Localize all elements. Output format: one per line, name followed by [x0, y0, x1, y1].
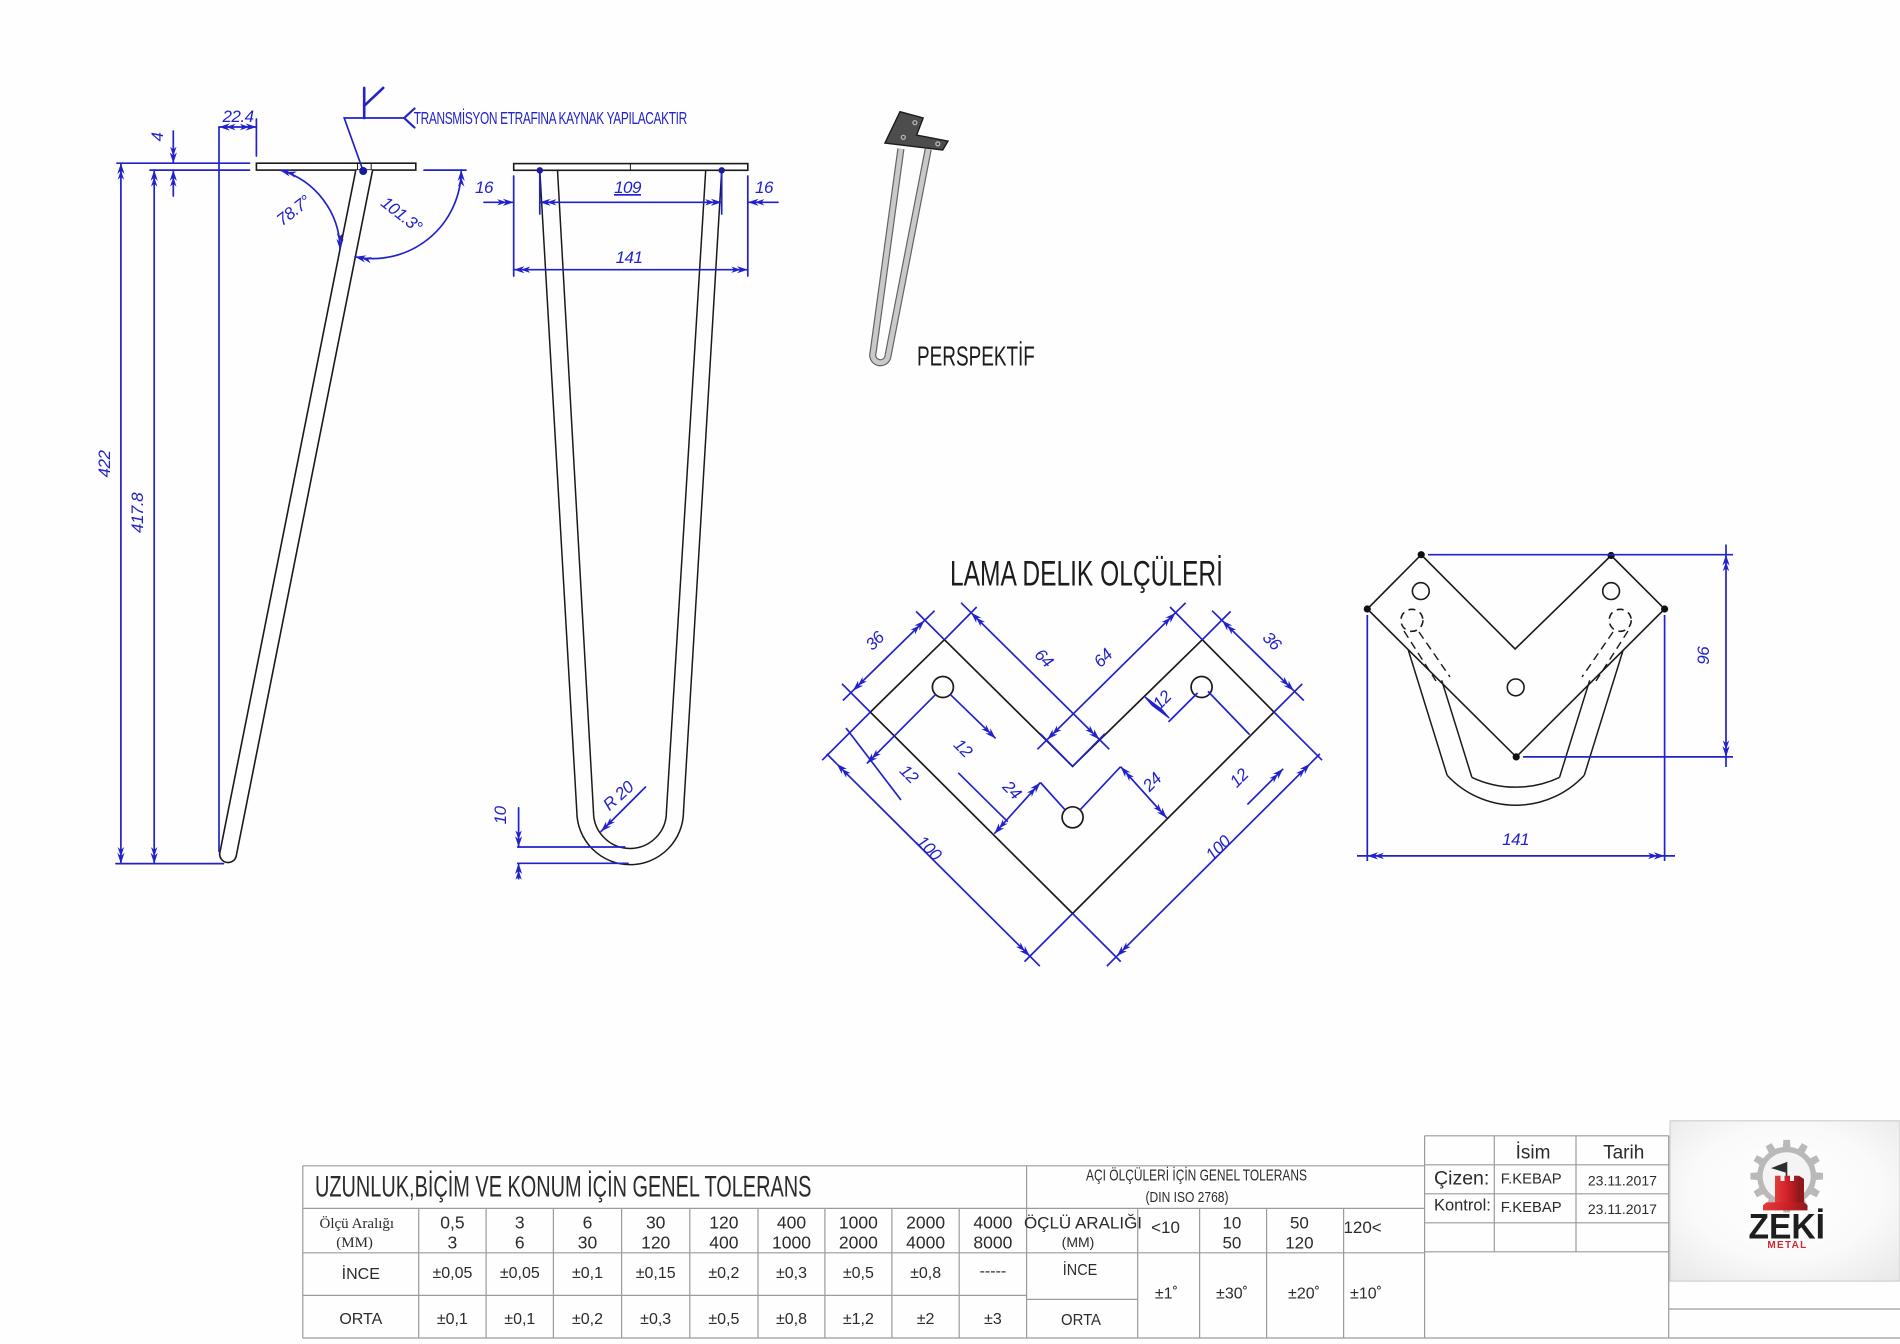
svg-text:4: 4	[148, 132, 167, 141]
svg-text:16: 16	[475, 178, 494, 197]
svg-text:(DIN ISO 2768): (DIN ISO 2768)	[1146, 1189, 1229, 1206]
svg-text:İNCE: İNCE	[342, 1264, 380, 1283]
svg-text:Çizen:: Çizen:	[1434, 1167, 1489, 1189]
svg-text:±0,2: ±0,2	[572, 1311, 603, 1328]
svg-text:Kontrol:: Kontrol:	[1434, 1196, 1491, 1214]
svg-text:30: 30	[578, 1233, 598, 1253]
svg-text:3: 3	[515, 1213, 525, 1233]
svg-text:±0,5: ±0,5	[708, 1311, 739, 1328]
svg-text:±3: ±3	[984, 1311, 1002, 1328]
svg-text:TRANSMİSYON ETRAFINA KAYNAK YA: TRANSMİSYON ETRAFINA KAYNAK YAPILACAKTIR	[414, 108, 688, 129]
svg-text:120: 120	[641, 1233, 670, 1253]
svg-text:LAMA DELIK OLÇÜLERİ: LAMA DELIK OLÇÜLERİ	[950, 555, 1223, 593]
svg-text:400: 400	[709, 1233, 738, 1253]
svg-text:±0,1: ±0,1	[572, 1265, 603, 1282]
svg-text:ORTA: ORTA	[1061, 1312, 1102, 1330]
svg-text:<10: <10	[1151, 1218, 1180, 1237]
svg-text:3: 3	[448, 1233, 458, 1253]
svg-text:İsim: İsim	[1516, 1143, 1551, 1164]
svg-text:6: 6	[583, 1213, 593, 1233]
svg-text:F.KEBAP: F.KEBAP	[1501, 1172, 1562, 1188]
svg-text:50: 50	[1290, 1214, 1309, 1233]
svg-text:1000: 1000	[839, 1213, 878, 1233]
svg-text:1000: 1000	[772, 1233, 811, 1253]
svg-text:±0,8: ±0,8	[776, 1311, 807, 1328]
svg-text:±0,5: ±0,5	[843, 1265, 874, 1282]
svg-text:±0,05: ±0,05	[432, 1265, 472, 1282]
svg-text:±0,1: ±0,1	[504, 1311, 535, 1328]
svg-text:Tarih: Tarih	[1603, 1143, 1644, 1164]
svg-text:±0,2: ±0,2	[708, 1265, 739, 1282]
svg-text:PERSPEKTİF: PERSPEKTİF	[917, 341, 1035, 373]
svg-text:23.11.2017: 23.11.2017	[1588, 1172, 1657, 1188]
svg-text:METAL: METAL	[1767, 1240, 1807, 1251]
svg-text:(MM): (MM)	[336, 1235, 373, 1251]
svg-text:±0,3: ±0,3	[776, 1265, 807, 1282]
svg-text:120<: 120<	[1343, 1218, 1381, 1237]
svg-text:422: 422	[95, 450, 114, 478]
svg-text:96: 96	[1694, 646, 1713, 665]
svg-text:±2: ±2	[917, 1311, 935, 1328]
svg-text:109: 109	[614, 178, 642, 197]
svg-text:120: 120	[709, 1213, 738, 1233]
svg-text:50: 50	[1222, 1234, 1241, 1253]
svg-text:±0,05: ±0,05	[500, 1265, 540, 1282]
svg-text:141: 141	[1502, 830, 1529, 849]
svg-text:141: 141	[616, 248, 643, 267]
svg-text:16: 16	[755, 178, 774, 197]
svg-text:UZUNLUK,BİÇİM VE KONUM İÇİN GE: UZUNLUK,BİÇİM VE KONUM İÇİN GENEL TOLERA…	[315, 1169, 811, 1203]
svg-text:±0,15: ±0,15	[636, 1265, 676, 1282]
svg-text:Ölçü Aralığı: Ölçü Aralığı	[320, 1215, 395, 1232]
svg-text:4000: 4000	[973, 1213, 1012, 1233]
svg-text:İNCE: İNCE	[1063, 1260, 1097, 1279]
svg-text:±20˚: ±20˚	[1288, 1286, 1320, 1303]
svg-text:2000: 2000	[906, 1213, 945, 1233]
svg-text:±0,3: ±0,3	[640, 1311, 671, 1328]
svg-text:6: 6	[515, 1233, 525, 1253]
svg-text:±0,8: ±0,8	[910, 1265, 941, 1282]
svg-text:ÖÇLÜ ARALIĞI: ÖÇLÜ ARALIĞI	[1024, 1214, 1142, 1233]
svg-text:0,5: 0,5	[440, 1213, 464, 1233]
svg-text:23.11.2017: 23.11.2017	[1588, 1201, 1657, 1217]
svg-text:±30˚: ±30˚	[1216, 1286, 1248, 1303]
svg-text:±10˚: ±10˚	[1350, 1286, 1382, 1303]
svg-text:±1˚: ±1˚	[1155, 1286, 1178, 1303]
svg-text:22.4: 22.4	[221, 107, 253, 126]
svg-text:(MM): (MM)	[1062, 1234, 1095, 1250]
svg-text:10: 10	[491, 805, 510, 824]
svg-text:30: 30	[646, 1213, 666, 1233]
svg-text:F.KEBAP: F.KEBAP	[1501, 1200, 1562, 1216]
svg-text:±0,1: ±0,1	[437, 1311, 468, 1328]
svg-text:417.8: 417.8	[128, 492, 147, 533]
svg-text:400: 400	[777, 1213, 806, 1233]
svg-text:ORTA: ORTA	[339, 1311, 382, 1328]
svg-text:8000: 8000	[973, 1233, 1012, 1253]
svg-text:AÇI ÖLÇÜLERİ İÇİN GENEL TOLERA: AÇI ÖLÇÜLERİ İÇİN GENEL TOLERANS	[1086, 1165, 1307, 1184]
svg-text:120: 120	[1285, 1234, 1313, 1253]
svg-text:±1,2: ±1,2	[843, 1311, 874, 1328]
svg-text:2000: 2000	[839, 1233, 878, 1253]
svg-text:-----: -----	[980, 1263, 1007, 1280]
svg-text:10: 10	[1222, 1214, 1241, 1233]
svg-text:4000: 4000	[906, 1233, 945, 1253]
